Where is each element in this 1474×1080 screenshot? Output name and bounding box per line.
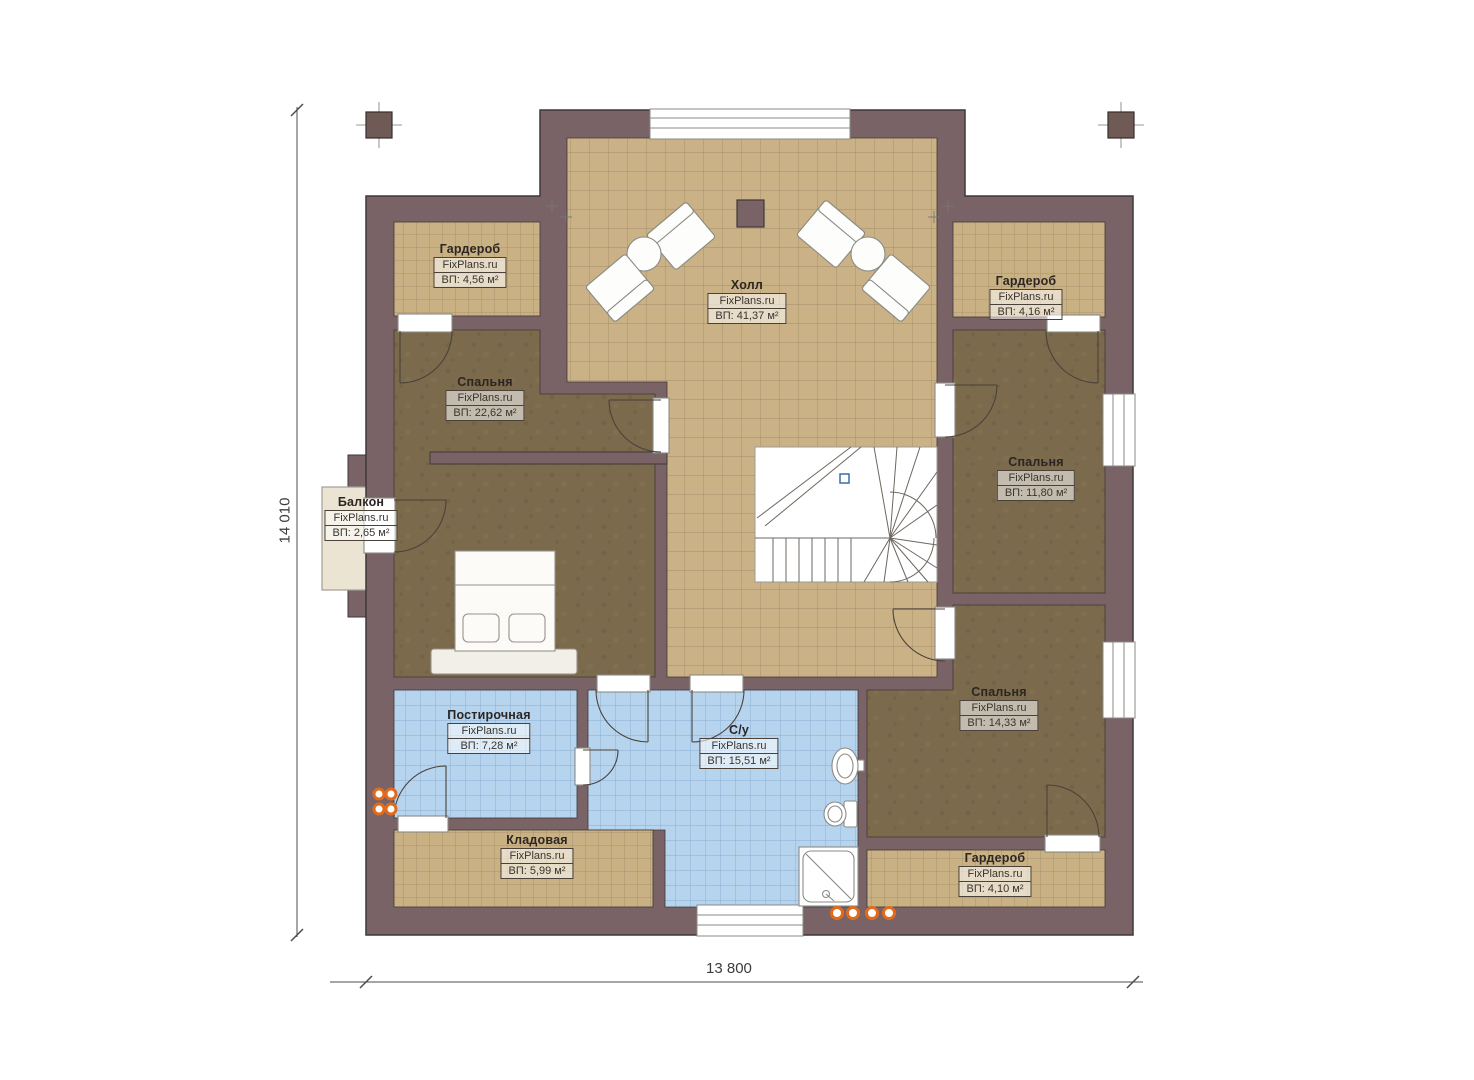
room-area: ВП: 15,51 м² [699,753,778,769]
room-label-wardrobe-top-left: Гардероб FixPlans.ru ВП: 4,56 м² [433,242,506,288]
room-area: ВП: 22,62 м² [445,405,524,421]
shower [799,847,858,906]
room-label-bedroom-right: Спальня FixPlans.ru ВП: 11,80 м² [997,455,1075,501]
room-name: Спальня [445,375,524,389]
room-area: ВП: 4,16 м² [989,304,1062,320]
pillow [463,614,499,642]
room-label-laundry: Постирочная FixPlans.ru ВП: 7,28 м² [447,708,530,754]
watermark: FixPlans.ru [445,390,524,406]
floor-plan-page: Гардероб FixPlans.ru ВП: 4,56 м² Холл Fi… [0,0,1474,1080]
room-name: Гардероб [989,274,1062,288]
room-label-wardrobe-top-right: Гардероб FixPlans.ru ВП: 4,16 м² [989,274,1062,320]
window-bathroom-bottom [697,905,803,936]
watermark: FixPlans.ru [707,293,786,309]
dimension-label-left: 14 010 [276,498,293,544]
room-area: ВП: 4,10 м² [958,881,1031,897]
bedroom-partition-wall [430,452,667,464]
room-name: Гардероб [433,242,506,256]
hall-column [737,200,764,227]
floor-plan-drawing [0,0,1474,1080]
room-area: ВП: 7,28 м² [447,738,530,754]
room-name: Гардероб [958,851,1031,865]
dimension-line-bottom [330,976,1143,988]
dimension-label-bottom: 13 800 [706,960,752,977]
pillar-top-right [1098,102,1144,148]
watermark: FixPlans.ru [997,470,1075,486]
watermark: FixPlans.ru [447,723,530,739]
toilet [824,801,857,827]
room-label-hall: Холл FixPlans.ru ВП: 41,37 м² [707,278,786,324]
room-area: ВП: 5,99 м² [500,863,573,879]
watermark: FixPlans.ru [324,510,397,526]
room-label-bedroom-bottom-right: Спальня FixPlans.ru ВП: 14,33 м² [959,685,1038,731]
room-label-wardrobe-bottom-right: Гардероб FixPlans.ru ВП: 4,10 м² [958,851,1031,897]
watermark: FixPlans.ru [500,848,573,864]
watermark: FixPlans.ru [959,700,1038,716]
room-name: Балкон [324,495,397,509]
room-name: Спальня [959,685,1038,699]
window-bedroom-right [1103,394,1135,466]
room-label-bathroom: С/у FixPlans.ru ВП: 15,51 м² [699,723,778,769]
room-area: ВП: 2,65 м² [324,525,397,541]
pillow [509,614,545,642]
room-label-bedroom-left: Спальня FixPlans.ru ВП: 22,62 м² [445,375,524,421]
pillar-top-left [356,102,402,148]
room-label-balcony: Балкон FixPlans.ru ВП: 2,65 м² [324,495,397,541]
watermark: FixPlans.ru [958,866,1031,882]
room-name: Кладовая [500,833,573,847]
window-bedroom-bottom-right [1103,642,1135,718]
watermark: FixPlans.ru [699,738,778,754]
room-label-storage: Кладовая FixPlans.ru ВП: 5,99 м² [500,833,573,879]
room-name: С/у [699,723,778,737]
staircase [755,447,937,582]
room-area: ВП: 14,33 м² [959,715,1038,731]
room-area: ВП: 41,37 м² [707,308,786,324]
room-name: Холл [707,278,786,292]
room-name: Постирочная [447,708,530,722]
watermark: FixPlans.ru [989,289,1062,305]
watermark: FixPlans.ru [433,257,506,273]
room-name: Спальня [997,455,1075,469]
room-area: ВП: 11,80 м² [997,485,1075,501]
room-area: ВП: 4,56 м² [433,272,506,288]
window-hall-top [650,109,850,139]
